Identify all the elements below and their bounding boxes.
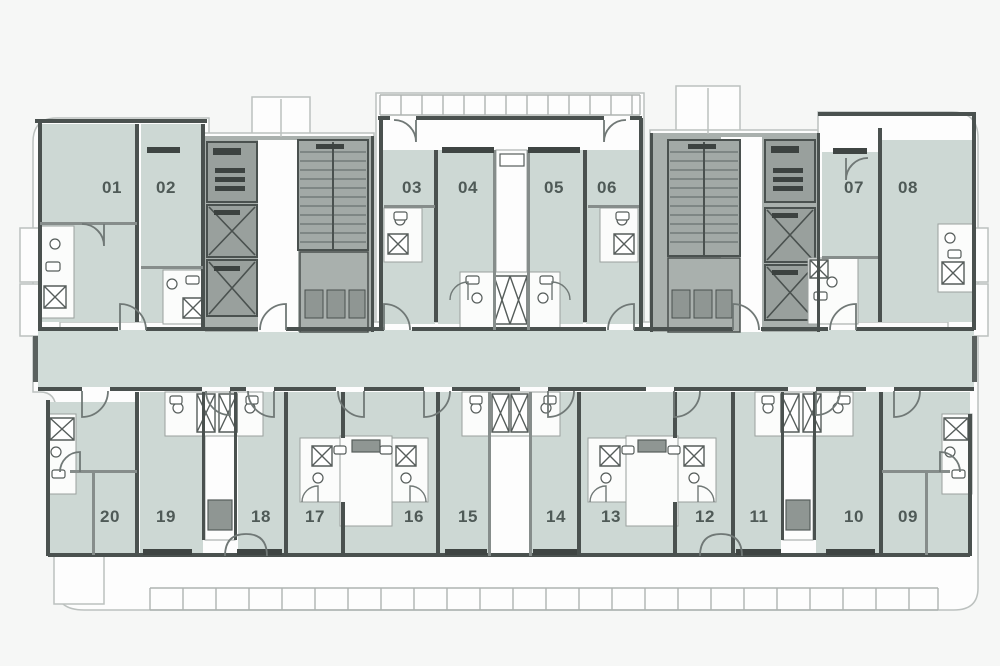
floor-plan-canvas: 01 02 03 04 05 06 07 08 20 19 18 17 16 1… bbox=[0, 0, 1000, 666]
unit-label-07: 07 bbox=[844, 178, 864, 198]
unit-label-01: 01 bbox=[102, 178, 122, 198]
unit-label-19: 19 bbox=[156, 507, 176, 527]
unit-label-06: 06 bbox=[597, 178, 617, 198]
unit-label-11: 11 bbox=[750, 507, 769, 527]
unit-label-14: 14 bbox=[546, 507, 566, 527]
unit-label-10: 10 bbox=[844, 507, 864, 527]
unit-label-02: 02 bbox=[156, 178, 176, 198]
shaft-box bbox=[786, 500, 810, 530]
unit-label-04: 04 bbox=[458, 178, 478, 198]
unit-label-12: 12 bbox=[695, 507, 715, 527]
unit-label-09: 09 bbox=[898, 507, 918, 527]
unit-label-08: 08 bbox=[898, 178, 918, 198]
floor-plan-drawing bbox=[0, 0, 1000, 666]
label-smudge bbox=[316, 144, 344, 149]
unit-label-16: 16 bbox=[404, 507, 424, 527]
shaft-box bbox=[638, 440, 666, 452]
corridor-area bbox=[38, 330, 974, 387]
label-smudge bbox=[688, 144, 716, 149]
shaft-box bbox=[352, 440, 380, 452]
unit-label-20: 20 bbox=[100, 507, 120, 527]
shaft-box bbox=[208, 500, 232, 530]
unit-label-17: 17 bbox=[305, 507, 325, 527]
unit-label-05: 05 bbox=[544, 178, 564, 198]
left-stair-icon bbox=[298, 140, 368, 250]
right-core-rooms bbox=[668, 258, 740, 332]
unit-label-18: 18 bbox=[251, 507, 271, 527]
left-core-lobby bbox=[258, 140, 298, 332]
unit-label-13: 13 bbox=[601, 507, 621, 527]
shaft-box bbox=[500, 154, 524, 166]
unit-label-03: 03 bbox=[402, 178, 422, 198]
right-stair-icon bbox=[668, 140, 740, 256]
left-core-rooms bbox=[300, 252, 368, 332]
unit-label-15: 15 bbox=[458, 507, 478, 527]
